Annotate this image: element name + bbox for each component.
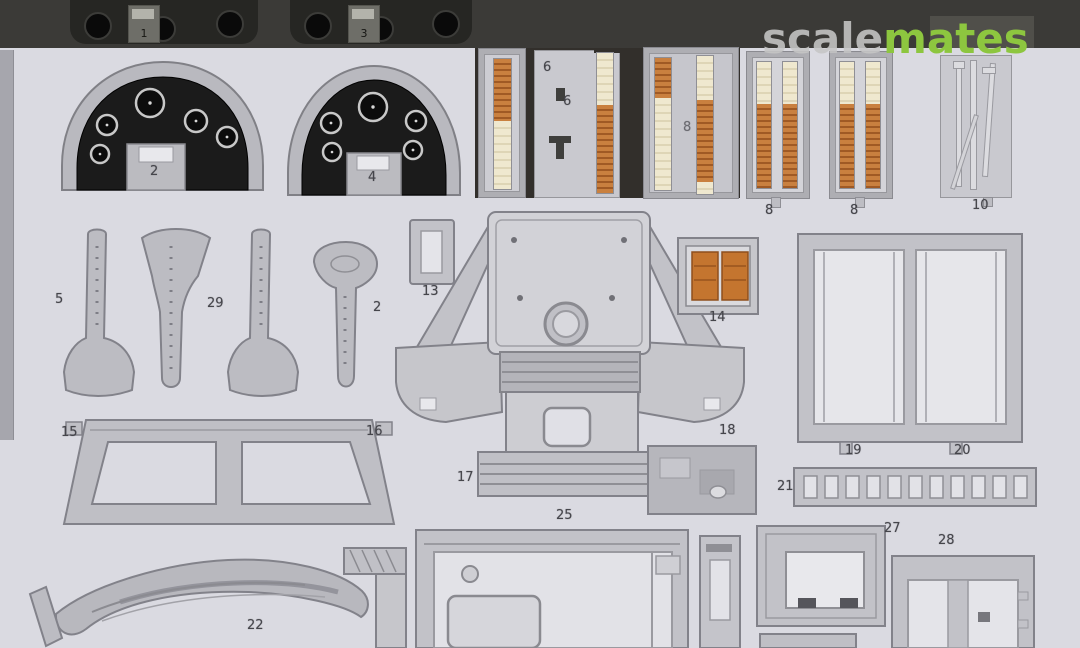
part-number-label: 19 <box>845 443 862 458</box>
belt-cream-segment <box>783 62 797 104</box>
part-number-label: 4 <box>368 170 376 185</box>
belt-woven-segment <box>597 105 613 193</box>
part-number-label: 18 <box>719 423 736 438</box>
seatbelt-strap <box>494 59 511 189</box>
belt-cream-segment <box>597 53 613 105</box>
lever-part-5 <box>64 230 134 397</box>
watermark-mates-text: mates <box>883 14 1029 63</box>
seatbelt-frame <box>479 49 525 197</box>
seatbelt-strap <box>757 62 771 188</box>
seatbelt-strap <box>597 53 613 193</box>
buckle-wire <box>983 64 995 176</box>
buckle-hook <box>983 68 995 73</box>
buckle-panel-10 <box>940 55 1012 198</box>
belt-woven-segment <box>494 59 511 121</box>
bracket-part-13 <box>410 220 454 284</box>
watermark-scale-text: scale <box>762 14 883 63</box>
part-number-label: 10 <box>972 198 989 213</box>
windshield-frame-parts-15-16 <box>64 420 394 524</box>
frame-part-28 <box>892 556 1034 648</box>
belt-woven-segment <box>697 100 713 182</box>
seatbelt-strap <box>655 58 671 190</box>
lever-parts <box>64 229 377 396</box>
belt-cream-segment <box>840 62 854 104</box>
belt-cream-segment <box>494 121 511 189</box>
strip-holes <box>804 476 1027 498</box>
narrow-strip-part <box>700 536 740 648</box>
seatbelt-strap <box>866 62 880 188</box>
seatbelt-frame <box>830 52 892 198</box>
part-number-label: 6 <box>563 94 571 109</box>
belt-woven-segment <box>840 104 854 188</box>
curved-rail-part-22 <box>30 560 368 646</box>
part-number-label: 8 <box>765 203 773 218</box>
belt-woven-segment <box>783 104 797 188</box>
part-number-label: 25 <box>556 508 573 523</box>
part-number-label: 6 <box>543 60 551 75</box>
part-number-label: 8 <box>850 203 858 218</box>
belt-cream-segment <box>697 56 713 100</box>
plate-part-18 <box>648 446 756 514</box>
belt-woven-segment <box>655 58 671 98</box>
part-number-label: 21 <box>777 479 794 494</box>
part-number-label: 2 <box>373 300 381 315</box>
panel-parts-19-20 <box>798 234 1022 454</box>
part-number-label: 15 <box>61 425 78 440</box>
seatbelt-strap <box>783 62 797 188</box>
part-number-label: 2 <box>150 164 158 179</box>
paddle-part <box>314 242 377 387</box>
seatbelt-frame <box>747 52 809 198</box>
part-number-label: 28 <box>938 533 955 548</box>
instrument-panel-2 <box>62 62 263 190</box>
part-number-label: 29 <box>207 296 224 311</box>
seatbelt-strap <box>697 56 713 194</box>
ladder-strip-part-21 <box>794 468 1036 506</box>
panel-part-25 <box>416 530 688 648</box>
part-number-label: 13 <box>422 284 439 299</box>
frame-part-27 <box>757 526 885 648</box>
belt-cream-segment <box>655 98 671 190</box>
buckle-detail <box>549 136 571 143</box>
placard-part-14 <box>678 238 758 314</box>
belt-cream-segment <box>697 182 713 194</box>
belt-woven-segment <box>866 104 880 188</box>
part-number-label: 20 <box>954 443 971 458</box>
seatbelt-strap <box>840 62 854 188</box>
lever-part-29 <box>142 229 210 387</box>
lever-part <box>228 230 298 397</box>
part-number-label: 27 <box>884 521 901 536</box>
belt-cream-segment <box>866 62 880 104</box>
photoetch-sheet-photo: 1 3 <box>0 0 1080 648</box>
part-number-label: 5 <box>55 292 63 307</box>
belt-woven-segment <box>757 104 771 188</box>
part-number-label: 8 <box>683 120 691 135</box>
part-number-label: 22 <box>247 618 264 633</box>
buckle-detail <box>556 143 564 159</box>
part-number-label: 14 <box>709 310 726 325</box>
part-number-label: 16 <box>366 424 383 439</box>
part-number-label: 17 <box>457 470 474 485</box>
scalemates-watermark: scalemates <box>762 18 1029 60</box>
belt-cream-segment <box>757 62 771 104</box>
